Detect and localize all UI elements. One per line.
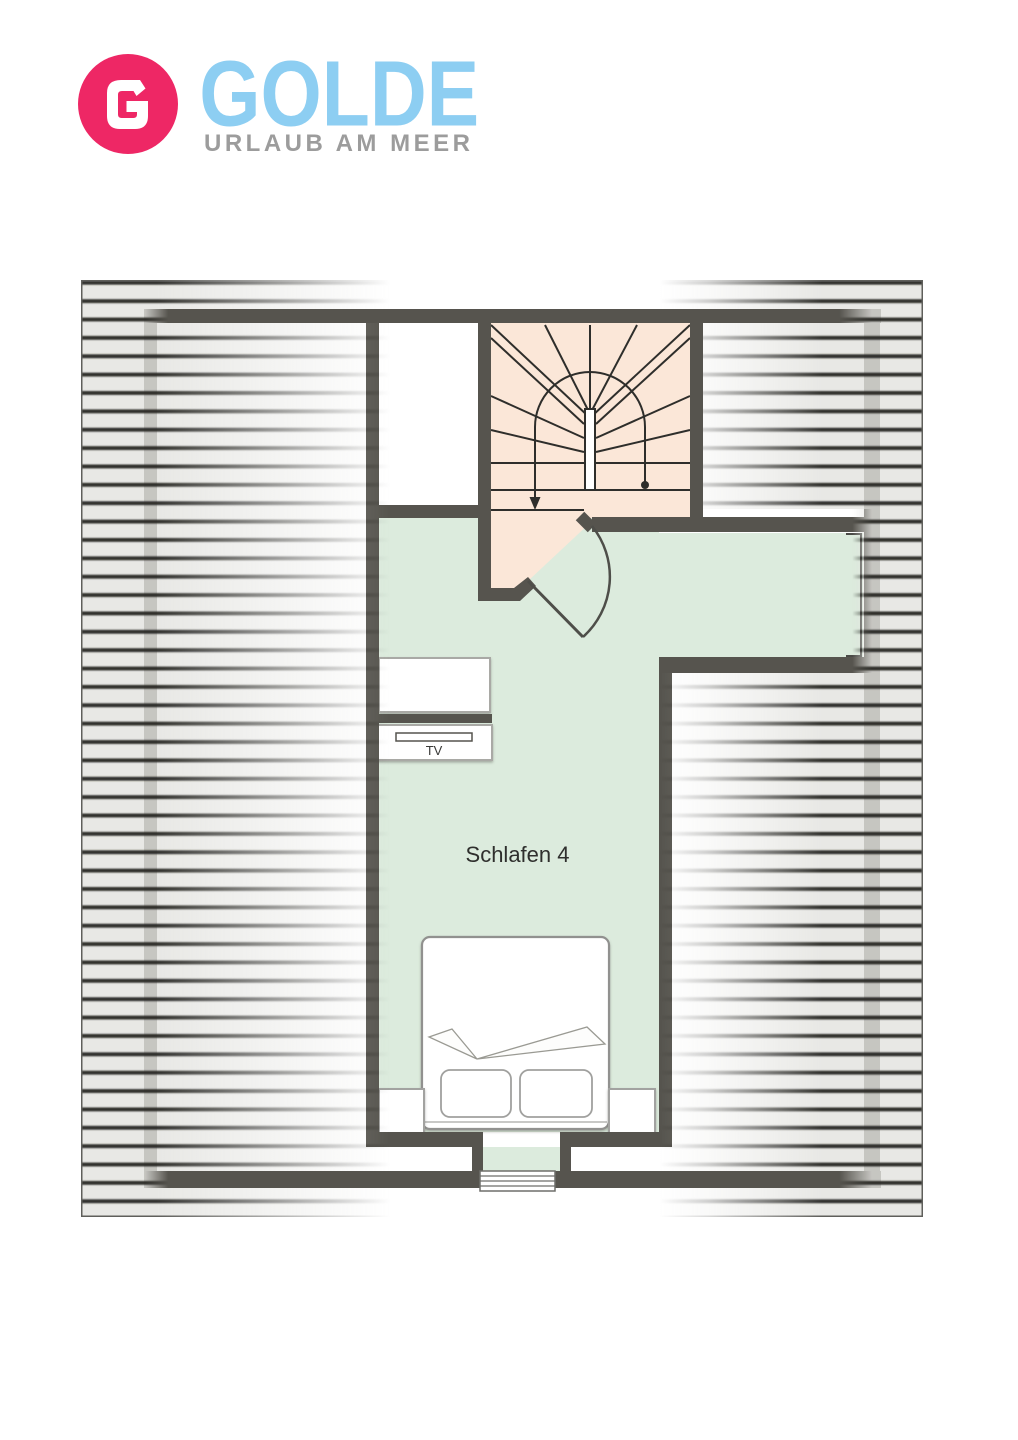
svg-text:URLAUB AM MEER: URLAUB AM MEER bbox=[204, 130, 473, 157]
